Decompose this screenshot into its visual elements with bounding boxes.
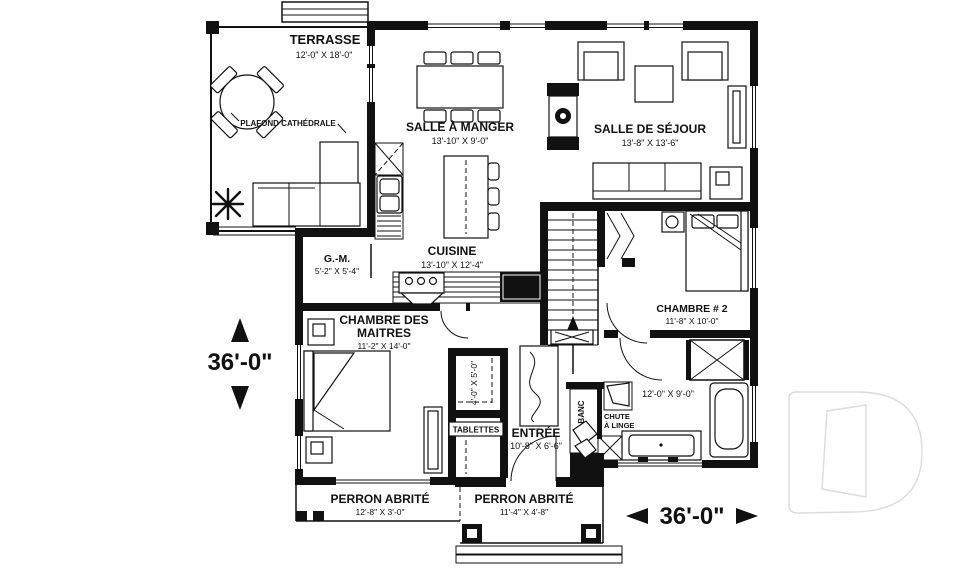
room-dims-salle-de-sejour: 13'-8" X 13'-6": [622, 138, 679, 148]
room-label-salle-a-manger: SALLE À MANGER: [406, 119, 514, 134]
label-tablettes: TABLETTES: [453, 426, 500, 435]
armchair-icon: [682, 42, 728, 80]
overall-width-label: 36'-0": [659, 503, 724, 530]
room-dims-perron-right: 11'-4" X 4'-8": [500, 507, 548, 517]
kitchen-sink-icon: [377, 176, 402, 213]
room-label-maitres-1: CHAMBRE DES: [339, 313, 428, 327]
side-table-icon: [710, 167, 742, 199]
tablettes-closet-area: TABLETTES: [449, 422, 503, 474]
floor-plan-page: TERRASSE 12'-0" X 18'-0" PLAFOND CATHÉDR…: [0, 0, 960, 569]
room-dims-maitres: 11'-2" X 14'-0": [357, 341, 410, 351]
kitchen-island-icon: [444, 156, 499, 238]
nightstand-lamp-icon: [662, 212, 684, 232]
terrasse-area: TERRASSE 12'-0" X 18'-0" PLAFOND CATHÉDR…: [206, 2, 368, 235]
chambre2-area: CHAMBRE # 2 11'-8" X 10'-0": [607, 211, 748, 326]
room-dims-perron-left: 12'-8" X 3'-0": [356, 507, 405, 517]
bed2-icon: [686, 211, 748, 291]
room-label-terrasse: TERRASSE: [290, 32, 361, 47]
porch-step: [456, 555, 622, 563]
chambre-maitres-area: CHAMBRE DES MAITRES 11'-2" X 14'-0": [304, 313, 442, 473]
porch-post: [313, 511, 324, 521]
fireplace-icon: [547, 83, 579, 150]
room-dims-bain: 12'-0" X 9'-0": [642, 389, 694, 399]
shower-icon: [686, 340, 749, 380]
arrow-left-icon: [626, 508, 648, 524]
room-dims-terrasse: 12'-0" X 18'-0": [296, 50, 353, 60]
banc-area: BANC: [570, 389, 598, 458]
porch-post: [296, 511, 307, 521]
arrow-down-icon: [231, 386, 249, 410]
bifold-closet-doors: [607, 213, 634, 259]
arrow-up-icon: [231, 318, 249, 342]
room-dims-salle-a-manger: 13'-10" X 9'-0": [432, 136, 489, 146]
terrasse-post: [206, 222, 219, 235]
kitchen-counter-south: [393, 272, 543, 304]
terrasse-top-step: [282, 2, 368, 22]
porch-step: [456, 546, 622, 554]
nightstand-icon: [308, 319, 334, 345]
dimension-depth: 36'-0": [207, 318, 272, 410]
salle-a-manger-area: SALLE À MANGER 13'-10" X 9'-0": [406, 52, 514, 146]
bath-door-arc: [620, 338, 662, 380]
label-chute-1: CHUTE: [604, 412, 630, 421]
note-plafond-cathedrale: PLAFOND CATHÉDRALE: [240, 119, 336, 128]
room-label-maitres-2: MAITRES: [357, 326, 411, 340]
armchair-icon: [578, 42, 624, 80]
room-dims-entree: 10'-8" X 6'-6": [510, 441, 562, 451]
garde-manger-area: G.-M. 5'-2" X 5'-4": [315, 253, 359, 276]
vanity-sink-icon: [622, 431, 701, 462]
room-dims-walkin: 4'-0" X 5'-0": [469, 361, 479, 405]
room-label-chambre2: CHAMBRE # 2: [656, 303, 727, 315]
deck-boards: [213, 227, 296, 235]
brand-watermark-d-logo: [789, 392, 922, 513]
arrow-right-icon: [736, 508, 758, 524]
window-seat-icon: [728, 86, 746, 148]
master-bed-icon: [304, 351, 390, 431]
stove-icon: [399, 273, 444, 304]
entry-closet-icon: [520, 346, 558, 426]
room-dims-cuisine: 13'-10" X 12'-4": [421, 260, 483, 270]
overall-depth-label: 36'-0": [207, 349, 272, 376]
porch-post: [462, 524, 482, 543]
hatch-box-icon: [598, 436, 622, 460]
bench-cushion-icon: [573, 421, 597, 458]
coffee-table-icon: [635, 66, 673, 102]
salle-de-bain-area: 12'-0" X 9'-0": [622, 340, 749, 462]
label-chute-2: À LINGE: [604, 421, 634, 430]
console-table-icon: [551, 330, 593, 344]
porch-post: [581, 524, 601, 543]
room-label-salle-de-sejour: SALLE DE SÉJOUR: [594, 121, 706, 136]
room-label-entree: ENTRÉE: [512, 425, 561, 440]
room-dims-chambre2: 11'-8" X 10'-0": [665, 316, 718, 326]
cuisine-area: CUISINE 13'-10" X 12'-4": [375, 143, 543, 304]
perron-right-area: PERRON ABRITÉ 11'-4" X 4'-8": [456, 487, 622, 563]
dresser-icon: [424, 407, 442, 473]
room-label-perron-left: PERRON ABRITÉ: [331, 491, 430, 506]
room-label-gm: G.-M.: [324, 253, 350, 265]
refrigerator-icon: [500, 272, 543, 302]
nightstand-icon: [306, 437, 332, 463]
outdoor-sofa-icon: [253, 142, 360, 226]
plant-icon: [213, 189, 243, 219]
walkin-closet-area: 4'-0" X 5'-0": [458, 358, 492, 406]
dimension-width: 36'-0": [626, 503, 758, 530]
perron-left-area: PERRON ABRITÉ 12'-8" X 3'-0": [296, 485, 460, 521]
bathtub-icon: [710, 383, 748, 457]
leader-tick: [338, 124, 346, 133]
label-banc: BANC: [577, 400, 586, 423]
salle-de-sejour-area: SALLE DE SÉJOUR 13'-8" X 13'-6": [547, 42, 746, 199]
kitchen-counter-left: [375, 143, 403, 239]
master-door-arc: [441, 311, 468, 338]
floor-plan-drawing: TERRASSE 12'-0" X 18'-0" PLAFOND CATHÉDR…: [0, 0, 960, 569]
room-label-perron-right: PERRON ABRITÉ: [475, 491, 574, 506]
dining-table-icon: [417, 52, 503, 122]
sofa-icon: [593, 163, 701, 199]
terrasse-post: [206, 21, 219, 34]
room-dims-gm: 5'-2" X 5'-4": [315, 266, 359, 276]
room-label-cuisine: CUISINE: [428, 244, 477, 258]
